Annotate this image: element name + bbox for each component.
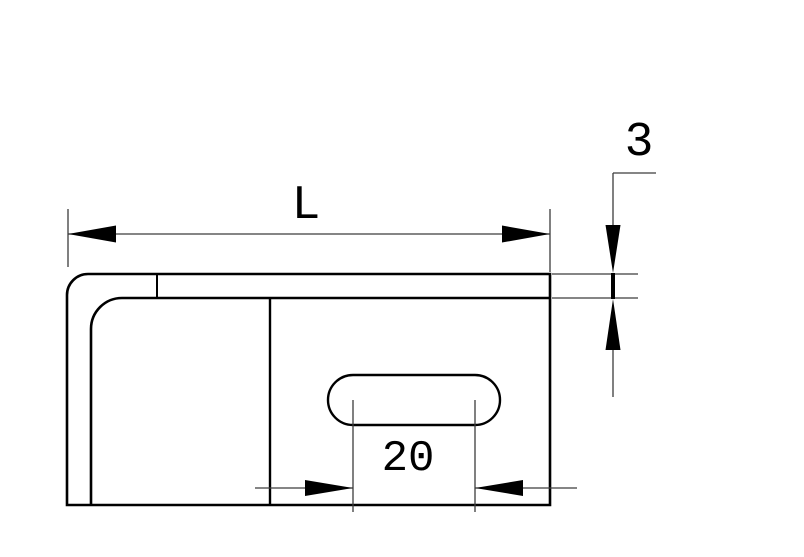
slot-outline xyxy=(328,375,500,425)
length-arrowhead-left xyxy=(68,226,116,243)
thickness-dimension-label: 3 xyxy=(625,116,654,170)
technical-drawing: L 3 20 xyxy=(0,0,804,557)
slot-arrowhead-right xyxy=(475,480,523,496)
bracket-outer-outline xyxy=(67,274,550,505)
bracket-inner-outline xyxy=(91,298,550,505)
length-dimension-label: L xyxy=(292,179,321,233)
slot-arrowhead-left xyxy=(305,480,353,496)
slot-dimension-label: 20 xyxy=(382,434,435,484)
bracket-part xyxy=(67,274,550,505)
dimension-thickness: 3 xyxy=(552,116,656,397)
thickness-arrowhead-up xyxy=(606,299,621,350)
thickness-arrowhead-down xyxy=(606,225,621,273)
drawing-canvas: L 3 20 xyxy=(0,0,804,557)
dimension-length: L xyxy=(68,179,550,272)
dimension-slot-width: 20 xyxy=(255,400,577,512)
length-arrowhead-right xyxy=(502,226,550,243)
